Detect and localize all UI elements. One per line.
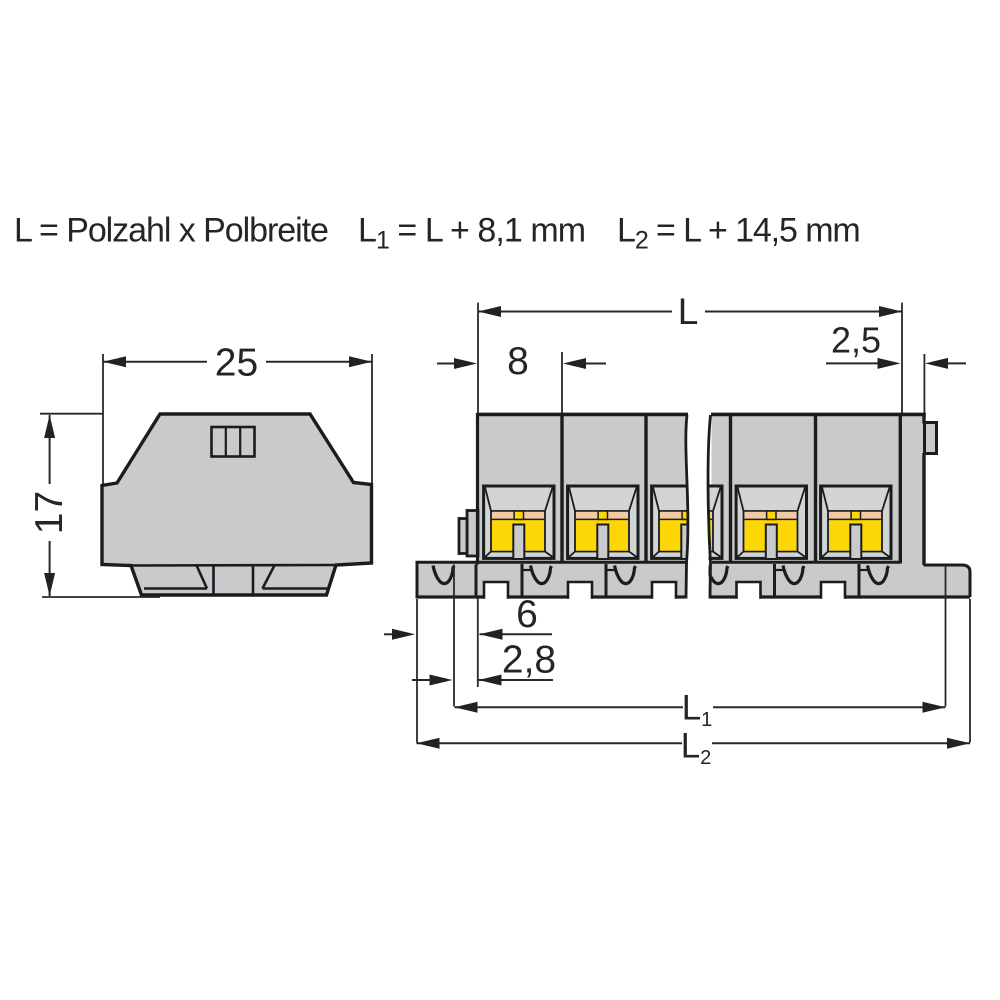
svg-text:25: 25 (215, 342, 258, 385)
svg-text:6: 6 (516, 593, 538, 636)
svg-text:17: 17 (28, 491, 71, 534)
svg-text:L: L (678, 291, 699, 332)
svg-text:L2: L2 (681, 727, 712, 770)
svg-text:L2 = L + 14,5 mm: L2 = L + 14,5 mm (617, 212, 860, 255)
svg-text:2,5: 2,5 (831, 320, 881, 361)
svg-text:2,8: 2,8 (502, 639, 556, 682)
svg-text:L1 = L + 8,1 mm: L1 = L + 8,1 mm (358, 212, 585, 255)
svg-text:L = Polzahl x Polbreite: L = Polzahl x Polbreite (14, 212, 328, 250)
svg-text:L1: L1 (682, 689, 713, 732)
svg-text:8: 8 (507, 340, 529, 383)
